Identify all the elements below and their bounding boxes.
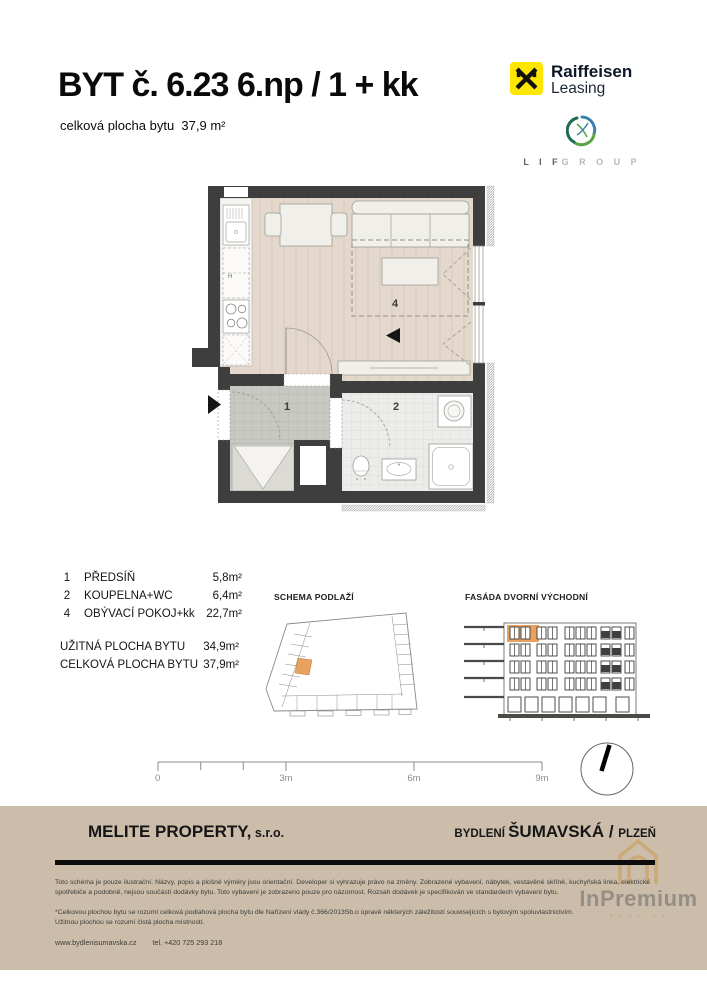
page-title: BYT č. 6.23 6.np / 1 + kk [58,66,418,105]
highlighted-unit [295,658,312,675]
legend-room-num: 2 [60,590,74,602]
group-text: G R O U P [562,157,641,167]
scale-label-9m: 9m [535,773,548,784]
shower [429,444,473,489]
flyer-page: BYT č. 6.23 6.np / 1 + kk celková plocha… [0,0,707,1000]
total-label: UŽITNÁ PLOCHA BYTU [60,641,203,653]
lif-group-logo: L I FG R O U P [518,114,646,167]
schema-title: SCHEMA PODLAŽÍ [274,592,354,602]
sofa-seat [352,214,469,247]
legend-row: 4 OBÝVACÍ POKOJ+kk 22,7m² [60,608,242,626]
legend-room-name: KOUPELNA+WC [84,590,213,602]
project-prefix: BYDLENÍ [454,828,508,840]
toilet [353,456,369,476]
legend-room-area: 6,4m² [213,590,242,602]
total-value: 34,9m² [203,641,239,653]
legend-row: 1 PŘEDSÍŇ 5,8m² [60,572,242,590]
area-totals: UŽITNÁ PLOCHA BYTU 34,9m² CELKOVÁ PLOCHA… [60,641,239,677]
lif-text: L I F [523,157,561,167]
legend-room-area: 22,7m² [206,608,242,620]
phone-text: tel. +420 725 293 218 [153,938,223,947]
scale-label-0: 0 [155,773,160,784]
kitchen-h-label: H [228,274,232,280]
footer-divider [55,860,655,865]
totals-row: CELKOVÁ PLOCHA BYTU 37,9m² [60,659,239,677]
footnote-line1: *Celkovou plochou bytu se rozumí celková… [55,908,650,918]
raiffeisen-leasing-label: Leasing [551,81,632,97]
raiffeisen-wordmark: Raiffeisen [551,63,632,81]
shaft [294,440,332,491]
sofa-back [352,201,469,214]
project-city: PLZEŇ [618,828,656,840]
raiffeisen-gable-cross-icon [515,67,538,90]
website-text: www.bydlenisumavska.cz [55,938,137,947]
lif-group-wordmark: L I FG R O U P [518,157,646,167]
company-name: MELITE PROPERTY, s.r.o. [88,822,284,842]
scale-label-3m: 3m [279,773,292,784]
project-name: BYDLENÍ ŠUMAVSKÁ / PLZEŇ [370,822,656,842]
legend-room-num: 1 [60,572,74,584]
legend-row: 2 KOUPELNA+WC 6,4m² [60,590,242,608]
wall-niche [224,187,248,197]
chair-left [265,213,281,236]
stove [223,300,249,333]
room-number-hall: 1 [284,401,290,413]
north-compass-icon [578,740,636,798]
lif-group-swirl-icon [566,114,598,148]
total-area-value: 37,9 m² [181,118,225,133]
room-number-living: 4 [392,298,399,310]
total-value: 37,9m² [203,659,239,671]
inpremium-watermark: InPremium R E A L I T Y [570,886,707,918]
kitchen-fixtures: H [223,198,252,366]
total-area-label: celková plocha bytu [60,118,174,133]
apartment-floorplan: H [180,178,510,523]
total-label: CELKOVÁ PLOCHA BYTU [60,659,203,671]
floor-schema-drawing [262,610,432,725]
legend-room-area: 5,8m² [213,572,242,584]
total-area-line: celková plocha bytu 37,9 m² [60,118,226,133]
watermark-title: InPremium [570,886,707,912]
facade-drawing [462,610,667,725]
fasada-title: FASÁDA DVORNÍ VÝCHODNÍ [465,592,588,602]
project-title: ŠUMAVSKÁ [508,822,604,841]
scale-label-6m: 6m [407,773,420,784]
contact-line: www.bydlenisumavska.cz tel. +420 725 293… [55,938,236,947]
scale-bar: 0 3m 6m 9m [150,745,550,785]
french-window [473,246,485,363]
coffee-table [382,258,438,285]
totals-row: UŽITNÁ PLOCHA BYTU 34,9m² [60,641,239,659]
footnote-line2: Užitnou plochou se rozumí čistá plocha m… [55,918,650,928]
raiffeisen-logo: Raiffeisen Leasing [510,62,632,97]
legend-room-num: 4 [60,608,74,620]
company-name-main: MELITE PROPERTY, [88,822,251,841]
legend-room-name: OBÝVACÍ POKOJ+kk [84,608,206,620]
room-number-bath: 2 [393,401,399,413]
project-separator: / [604,822,618,841]
dining-table [280,204,332,246]
chair-right [331,213,347,236]
footnote-text: *Celkovou plochou bytu se rozumí celková… [55,908,650,928]
watermark-subtitle: R E A L I T Y [570,913,707,918]
raiffeisen-cross-icon [510,62,543,95]
disclaimer-text: Toto schéma je pouze ilustrační. Názvy, … [55,878,650,898]
room-legend: 1 PŘEDSÍŇ 5,8m² 2 KOUPELNA+WC 6,4m² 4 OB… [60,572,242,626]
company-name-suffix: s.r.o. [251,826,284,840]
ground-line [498,714,650,718]
legend-room-name: PŘEDSÍŇ [84,572,213,584]
